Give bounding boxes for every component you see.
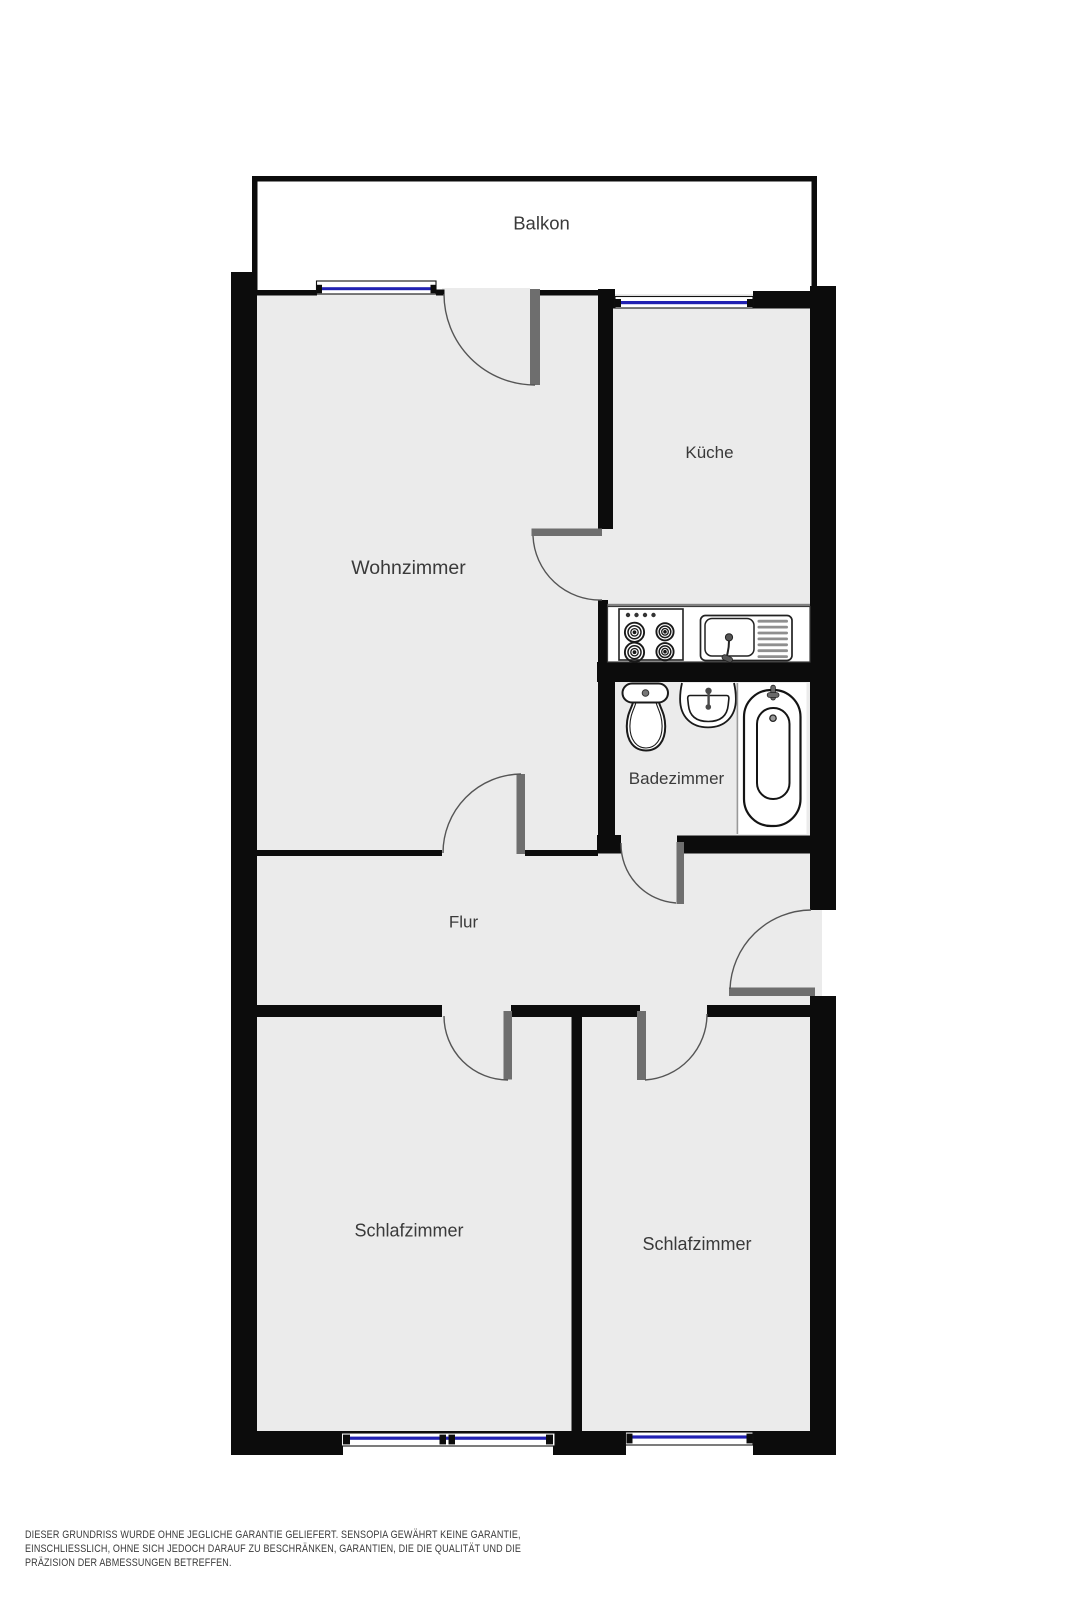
svg-text:Flur: Flur	[449, 913, 479, 932]
svg-text:Badezimmer: Badezimmer	[629, 769, 725, 788]
svg-text:Schlafzimmer: Schlafzimmer	[354, 1221, 463, 1241]
svg-text:Küche: Küche	[685, 443, 733, 462]
svg-text:PRÄZISION DER ABMESSUNGEN BETR: PRÄZISION DER ABMESSUNGEN BETREFFEN.	[25, 1556, 232, 1569]
svg-text:DIESER GRUNDRISS WURDE OHNE JE: DIESER GRUNDRISS WURDE OHNE JEGLICHE GAR…	[25, 1528, 521, 1541]
svg-text:Balkon: Balkon	[513, 213, 570, 234]
svg-text:Schlafzimmer: Schlafzimmer	[642, 1234, 751, 1254]
svg-text:EINSCHLIESSLICH, OHNE SICH JED: EINSCHLIESSLICH, OHNE SICH JEDOCH DARAUF…	[25, 1542, 521, 1555]
svg-text:Wohnzimmer: Wohnzimmer	[351, 557, 466, 579]
